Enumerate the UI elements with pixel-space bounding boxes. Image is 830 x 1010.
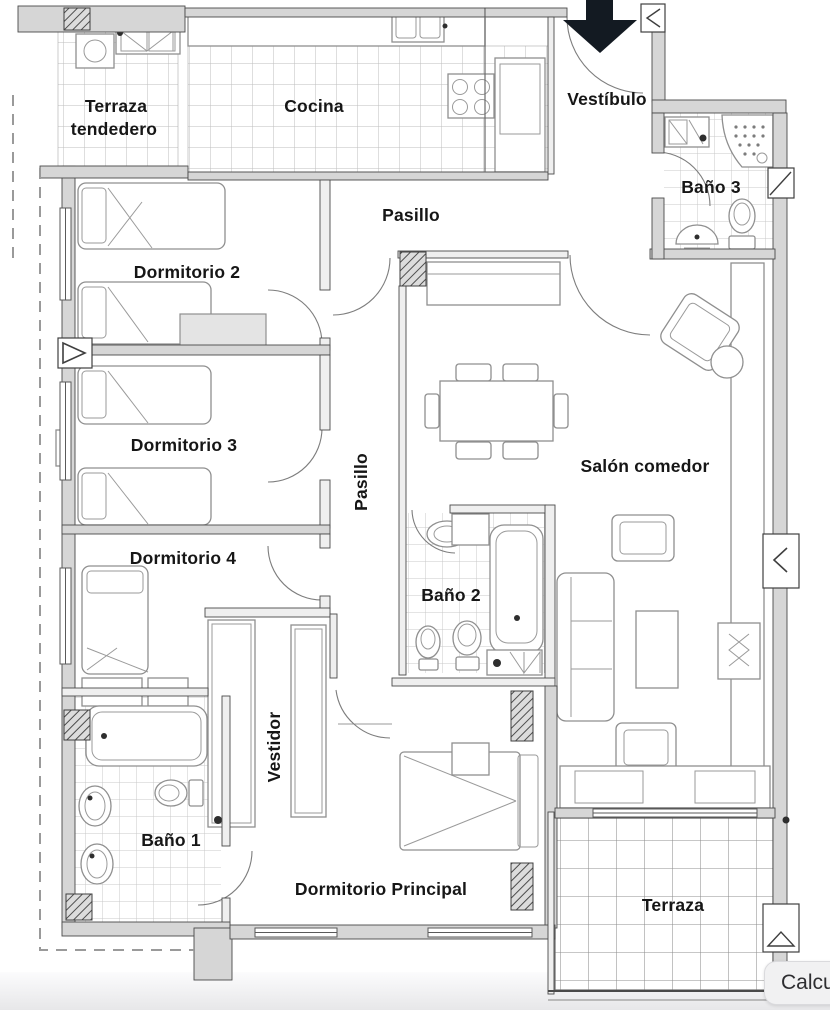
sofa-icon — [557, 573, 614, 721]
floorplan-page: Terraza tendedero Cocina Vestíbulo Baño … — [0, 0, 830, 1010]
bed-icon — [82, 566, 148, 674]
room-label-terraza-tendedero-line1: Terraza — [85, 96, 147, 116]
bathtub-icon — [490, 525, 543, 653]
sideboard — [427, 262, 560, 305]
room-label-pasillo-top: Pasillo — [382, 205, 440, 225]
calculate-button-label: Calcu — [781, 971, 830, 995]
low-bench — [560, 766, 770, 808]
shutter-box-icon — [641, 4, 665, 32]
duct-hatch — [511, 691, 533, 741]
bed-icon — [78, 183, 225, 249]
stove-icon — [448, 74, 494, 118]
bidet-icon — [416, 626, 440, 670]
toilet-icon — [155, 780, 203, 806]
fridge-column — [495, 58, 545, 172]
bath1-sink-icon — [81, 844, 113, 884]
bath2-cabinet-icon — [487, 650, 542, 675]
room-label-bano2: Baño 2 — [421, 585, 481, 605]
bath3-toilet-icon — [729, 199, 755, 249]
room-label-dormitorio2: Dormitorio 2 — [134, 262, 241, 282]
entrance-arrow-icon — [563, 0, 637, 53]
closet-unit — [208, 620, 255, 827]
pillar-hatch — [64, 8, 90, 30]
room-label-bano1: Baño 1 — [141, 830, 201, 850]
window — [593, 809, 757, 817]
room-label-terraza: Terraza — [642, 895, 704, 915]
room-label-bano3: Baño 3 — [681, 177, 741, 197]
shutter-box-icon — [763, 904, 799, 952]
room-label-vestidor: Vestidor — [264, 712, 284, 783]
bed-icon — [78, 468, 211, 525]
room-label-vestibulo: Vestíbulo — [567, 89, 647, 109]
calculate-button[interactable]: Calcu — [764, 961, 830, 1005]
pillar-hatch — [64, 710, 90, 740]
tv-cabinet-icon — [718, 623, 760, 679]
bathtub-icon — [86, 706, 207, 766]
bath3-cabinet-icon — [665, 117, 709, 147]
shutter-box-icon — [768, 168, 794, 198]
floor-plan: Terraza tendedero Cocina Vestíbulo Baño … — [0, 0, 830, 1010]
window — [255, 928, 337, 937]
room-label-dormitorio-principal: Dormitorio Principal — [295, 879, 467, 899]
shutter-box-icon — [763, 534, 799, 588]
vent-box-icon — [58, 338, 92, 368]
room-label-pasillo-mid: Pasillo — [351, 453, 371, 511]
window — [60, 382, 71, 480]
washing-machine-icon — [76, 34, 114, 68]
room-label-salon-comedor: Salón comedor — [580, 456, 709, 476]
dining-table-and-chairs — [425, 364, 568, 459]
side-table-round — [711, 346, 743, 378]
window — [60, 568, 71, 664]
pillar-hatch — [66, 894, 92, 920]
bed-icon — [78, 366, 211, 424]
pillar-hatch — [400, 252, 426, 286]
room-label-dormitorio4: Dormitorio 4 — [130, 548, 237, 568]
double-bed-icon — [338, 724, 538, 850]
duct-hatch — [511, 863, 533, 910]
closet-unit — [291, 625, 326, 817]
side-table — [452, 514, 489, 545]
room-label-dormitorio3: Dormitorio 3 — [131, 435, 238, 455]
gallery-strip — [731, 263, 764, 808]
side-table — [452, 743, 489, 775]
window — [60, 208, 71, 300]
room-label-cocina: Cocina — [284, 96, 344, 116]
bath1-sink-icon — [79, 786, 111, 826]
toilet-icon — [453, 621, 481, 670]
window — [428, 928, 532, 937]
room-label-terraza-tendedero-line2: tendedero — [71, 119, 157, 139]
coffee-table — [636, 611, 678, 688]
